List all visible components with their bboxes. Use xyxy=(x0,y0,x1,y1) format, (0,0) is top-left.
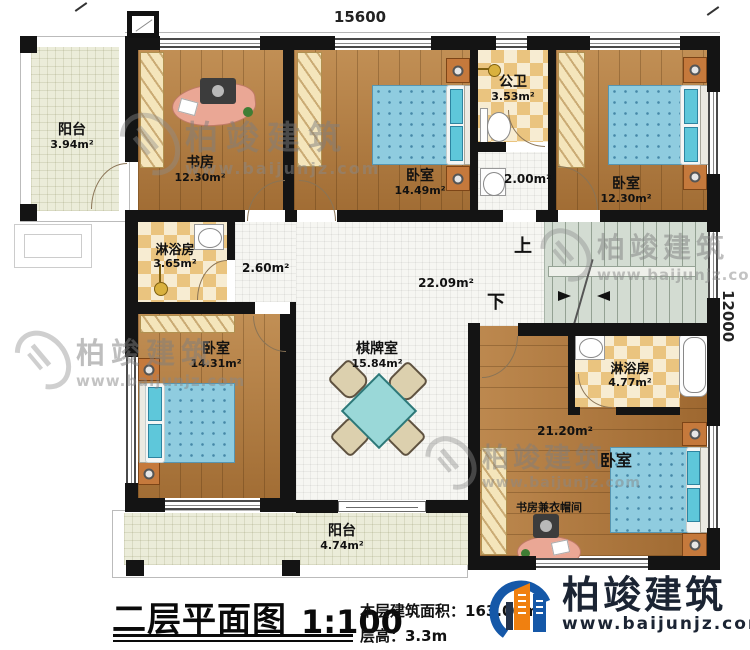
window xyxy=(165,500,260,510)
nightstand xyxy=(138,358,160,381)
bed-cushion xyxy=(687,451,700,485)
nightstand xyxy=(683,164,707,190)
wall-segment xyxy=(260,498,296,512)
dimension-top: 15600 xyxy=(315,8,405,26)
stairs-upper-flight xyxy=(552,222,707,266)
brand-logo-icon xyxy=(486,570,560,648)
balcony-bottom-floor xyxy=(124,513,468,565)
brand-logo xyxy=(486,570,560,650)
nightstand xyxy=(138,462,160,485)
wall-segment xyxy=(600,210,720,222)
wall-segment xyxy=(468,323,480,556)
wall-segment xyxy=(536,210,558,222)
wall-segment xyxy=(431,36,496,50)
wall-segment xyxy=(707,36,720,92)
wall-segment xyxy=(616,407,680,415)
dimension-tick xyxy=(75,2,88,12)
room-label-vestibule: 2.00m² xyxy=(504,172,550,186)
wall-segment xyxy=(285,210,297,222)
bed-cushion xyxy=(687,488,700,522)
bed xyxy=(163,383,235,463)
window xyxy=(708,232,718,298)
window xyxy=(536,558,648,568)
sliding-door xyxy=(338,501,426,512)
bed-cushion xyxy=(684,127,698,162)
stairs-down-label: 下 xyxy=(487,288,505,314)
wall-segment xyxy=(138,210,245,222)
wall-segment xyxy=(518,323,707,336)
wall-segment xyxy=(227,222,235,260)
wall-segment xyxy=(290,302,296,314)
room-label-public-bath: 公卫 3.53m² xyxy=(488,74,538,103)
brand-url: www.baijunjz.com xyxy=(562,614,750,634)
roof-ledge-inner xyxy=(24,234,82,258)
nightstand xyxy=(682,422,707,446)
room-label-hall: 22.09m² xyxy=(418,276,474,290)
bed-cushion xyxy=(148,424,162,458)
dimension-right: 12000 xyxy=(719,290,737,342)
column xyxy=(282,560,300,576)
bed-cushion xyxy=(148,387,162,421)
room-label-game-room: 棋牌室 15.84m² xyxy=(344,341,410,370)
window xyxy=(590,38,680,48)
wall-segment xyxy=(527,36,590,50)
bed-cushion xyxy=(684,89,698,124)
wall-segment xyxy=(568,333,575,407)
stairs-direction-arrow xyxy=(597,291,610,301)
floor-plan-canvas: 上 下 xyxy=(0,0,750,650)
room-label-balcony-top: 阳台 3.94m² xyxy=(42,122,102,151)
wall-segment xyxy=(568,407,580,415)
wall-segment xyxy=(707,174,720,232)
wall-segment xyxy=(468,556,536,570)
window xyxy=(708,426,718,528)
wardrobe xyxy=(140,315,235,333)
computer-icon xyxy=(533,514,559,538)
window xyxy=(708,92,718,174)
flue-shaft xyxy=(127,11,159,38)
wall-segment xyxy=(296,500,338,513)
brand-text: 柏竣建筑 www.baijunjz.com xyxy=(562,576,750,634)
toilet-icon xyxy=(487,112,511,142)
room-label-shower-left: 淋浴房 3.65m² xyxy=(146,243,204,271)
dimension-tick xyxy=(707,6,720,16)
flue-line xyxy=(136,19,153,31)
room-label-study: 书房 12.30m² xyxy=(170,155,230,184)
column xyxy=(20,36,37,53)
wardrobe xyxy=(140,52,164,168)
room-label-balcony-bottom: 阳台 4.74m² xyxy=(316,523,368,552)
wall-segment xyxy=(125,36,138,162)
nightstand xyxy=(682,533,707,557)
sink-basin xyxy=(483,172,505,196)
room-label-bedroom-top-right: 卧室 12.30m² xyxy=(596,176,656,205)
room-label-bedroom-bottom-right: 卧室 xyxy=(594,452,638,471)
wall-segment xyxy=(470,50,478,210)
wall-segment xyxy=(125,210,138,357)
bed xyxy=(608,85,684,165)
stairs-handrail xyxy=(548,266,696,277)
wardrobe xyxy=(481,447,507,555)
stairs-direction-arrow xyxy=(558,291,571,301)
window xyxy=(335,38,431,48)
window xyxy=(126,357,136,483)
room-label-shower-right: 淋浴房 4.77m² xyxy=(598,362,662,390)
bathtub-inner xyxy=(683,337,706,393)
wall-segment xyxy=(648,556,720,570)
nightstand xyxy=(446,58,470,83)
column xyxy=(20,204,37,221)
plant-icon xyxy=(243,107,253,117)
stairs-up-label: 上 xyxy=(514,232,532,258)
room-label-bedroom-top-mid: 卧室 14.49m² xyxy=(390,168,450,197)
wall-segment xyxy=(125,302,255,314)
wall-segment xyxy=(337,210,503,222)
bed-cushion xyxy=(450,89,463,124)
hall-floor xyxy=(296,222,544,326)
computer-icon xyxy=(200,78,236,104)
window xyxy=(496,38,527,48)
sink-basin xyxy=(579,338,603,358)
watermark-logo-icon xyxy=(3,319,82,400)
dimension-line-top xyxy=(125,32,720,33)
wall-segment xyxy=(125,498,165,512)
shower-fixture-icon xyxy=(154,282,168,296)
title-underline xyxy=(113,640,353,642)
window xyxy=(160,38,260,48)
bed xyxy=(372,85,450,165)
column xyxy=(126,560,144,576)
bed-cushion xyxy=(450,126,463,161)
room-label-study-cloakroom: 书房兼衣帽间 xyxy=(506,502,592,515)
room-label-bedroom-left: 卧室 14.31m² xyxy=(186,341,246,370)
title-underline xyxy=(113,634,353,637)
room-label-corridor: 2.60m² xyxy=(242,261,288,275)
wardrobe xyxy=(558,52,585,168)
wall-segment xyxy=(478,142,506,152)
wall-segment xyxy=(260,36,335,50)
wardrobe xyxy=(297,52,322,167)
room-label-bedroom-bottom-right-area: 21.20m² xyxy=(536,424,594,438)
nightstand xyxy=(683,57,707,83)
brand-name: 柏竣建筑 xyxy=(562,573,726,617)
floor-height-text: 层高：3.3m xyxy=(360,625,447,646)
